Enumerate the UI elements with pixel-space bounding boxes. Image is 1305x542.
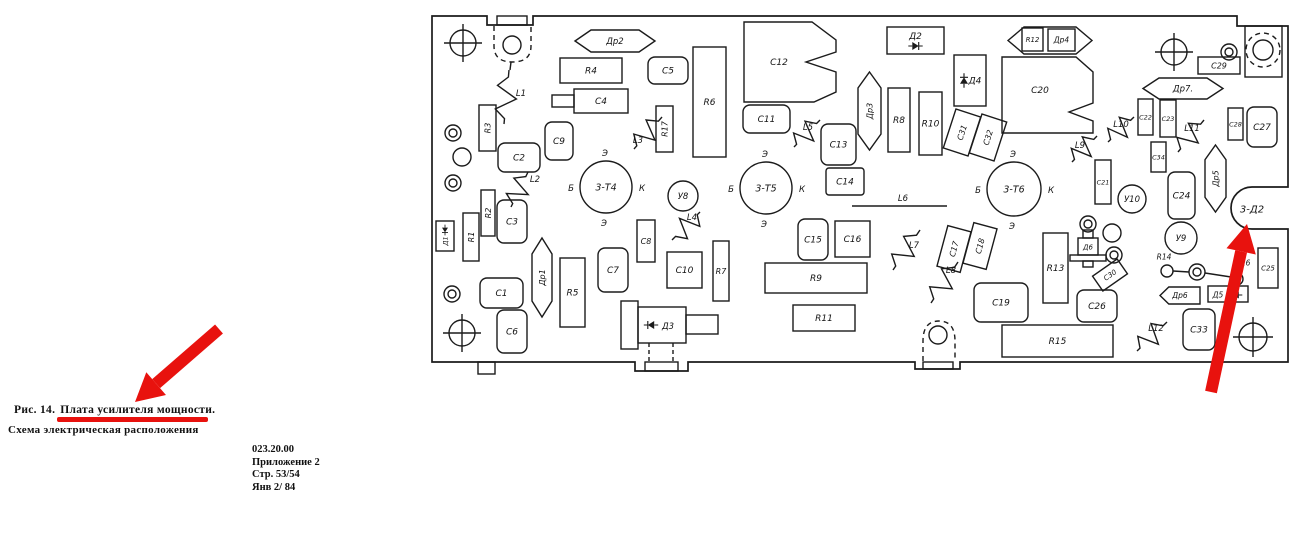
figure-caption: Рис. 14.Плата усилителя мощности. — [14, 404, 215, 416]
reference-date: Янв 2/ 84 — [252, 482, 320, 495]
svg-text:C34: C34 — [1152, 153, 1165, 161]
svg-text:Д2: Д2 — [908, 32, 922, 42]
svg-text:C19: C19 — [992, 299, 1010, 309]
svg-text:C10: C10 — [676, 266, 694, 276]
svg-text:L2: L2 — [530, 175, 540, 185]
svg-text:C9: C9 — [553, 137, 565, 147]
svg-text:L3: L3 — [633, 136, 643, 146]
svg-text:3-Т6: 3-Т6 — [1003, 184, 1024, 195]
svg-text:Э: Э — [600, 219, 607, 229]
svg-text:C3: C3 — [506, 218, 518, 228]
reference-appendix: Приложение 2 — [252, 457, 320, 470]
svg-text:К: К — [639, 184, 646, 194]
svg-text:C27: C27 — [1253, 123, 1271, 133]
reference-block: 023.20.00 Приложение 2 Стр. 53/54 Янв 2/… — [252, 444, 320, 494]
svg-text:Э: Э — [1008, 222, 1015, 232]
annotation-arrow-caption — [135, 329, 219, 402]
svg-text:C13: C13 — [830, 141, 848, 151]
svg-text:R15: R15 — [1049, 337, 1067, 347]
svg-text:Э: Э — [760, 220, 767, 230]
svg-text:К: К — [799, 185, 806, 195]
svg-text:Д5: Д5 — [1212, 291, 1224, 300]
pcb-board-svg: R4C4R6R3R17R1R2R5C8C10R7R8R10C31C32C14C1… — [0, 0, 1305, 542]
svg-text:Др1: Др1 — [538, 269, 547, 286]
svg-text:L6: L6 — [898, 194, 909, 204]
svg-text:L11: L11 — [1184, 124, 1200, 134]
svg-text:У9: У9 — [1176, 234, 1187, 244]
svg-text:L12: L12 — [1148, 324, 1164, 334]
svg-text:R8: R8 — [893, 116, 905, 126]
svg-text:C21: C21 — [1097, 178, 1110, 186]
reference-page: Стр. 53/54 — [252, 469, 320, 482]
svg-text:L5: L5 — [803, 123, 813, 133]
svg-text:C6: C6 — [506, 328, 518, 338]
svg-text:Э: Э — [601, 149, 608, 159]
svg-text:C2: C2 — [513, 154, 525, 164]
svg-text:C24: C24 — [1173, 192, 1191, 202]
pcb-figure: R4C4R6R3R17R1R2R5C8C10R7R8R10C31C32C14C1… — [0, 0, 1305, 542]
figure-caption-subtitle: Схема электрическая расположения — [8, 424, 199, 436]
svg-text:К: К — [1048, 186, 1055, 196]
svg-text:У10: У10 — [1124, 195, 1140, 205]
svg-text:R5: R5 — [567, 289, 579, 299]
svg-text:Д6: Д6 — [1082, 243, 1093, 251]
svg-text:C25: C25 — [1261, 264, 1275, 272]
svg-text:Др7.: Др7. — [1172, 84, 1193, 94]
svg-text:Др5: Др5 — [1211, 170, 1220, 187]
svg-text:Др3: Др3 — [865, 103, 874, 120]
svg-text:R2: R2 — [484, 208, 493, 219]
svg-text:Б: Б — [568, 184, 574, 194]
svg-text:Э: Э — [761, 150, 768, 160]
figure-caption-title: Плата усилителя мощности. — [60, 404, 215, 416]
svg-text:Б: Б — [728, 185, 734, 195]
svg-text:C16: C16 — [844, 235, 862, 245]
figure-caption-number: Рис. 14. — [14, 404, 55, 416]
svg-text:C1: C1 — [495, 289, 507, 299]
svg-text:Э: Э — [1009, 150, 1016, 160]
svg-text:R7: R7 — [716, 267, 728, 276]
svg-text:R1: R1 — [467, 232, 476, 243]
svg-text:R9: R9 — [810, 274, 822, 284]
svg-text:R10: R10 — [922, 120, 940, 130]
svg-text:3-Т5: 3-Т5 — [755, 183, 776, 194]
svg-text:R13: R13 — [1047, 264, 1065, 274]
svg-text:L9: L9 — [1075, 141, 1085, 151]
svg-text:R11: R11 — [815, 314, 833, 324]
svg-text:R6: R6 — [704, 98, 716, 108]
svg-text:Др4: Др4 — [1053, 36, 1070, 45]
svg-text:3-Т4: 3-Т4 — [595, 182, 616, 193]
svg-text:Др2: Др2 — [605, 37, 623, 47]
svg-text:L10: L10 — [1113, 120, 1129, 130]
svg-text:L1: L1 — [516, 89, 526, 99]
svg-text:Др6: Др6 — [1171, 291, 1188, 300]
svg-text:C20: C20 — [1031, 86, 1049, 96]
svg-text:Д1: Д1 — [441, 236, 449, 246]
svg-text:C29: C29 — [1211, 61, 1227, 70]
svg-text:C14: C14 — [836, 178, 854, 188]
svg-text:L7: L7 — [909, 241, 920, 251]
annotation-underline — [57, 417, 208, 422]
svg-text:C22: C22 — [1139, 113, 1152, 121]
svg-text:C15: C15 — [804, 236, 822, 246]
svg-text:C28: C28 — [1229, 120, 1242, 128]
svg-text:Б: Б — [975, 186, 981, 196]
svg-text:L4: L4 — [687, 213, 697, 223]
svg-text:C26: C26 — [1088, 302, 1106, 312]
component-3-Д2: 3-Д2 — [1240, 205, 1264, 216]
svg-text:R14: R14 — [1157, 253, 1172, 262]
svg-text:C4: C4 — [595, 97, 607, 107]
svg-text:Д4: Д4 — [968, 77, 982, 87]
svg-text:R12: R12 — [1026, 36, 1040, 44]
svg-text:L8: L8 — [946, 266, 957, 276]
reference-doc-number: 023.20.00 — [252, 444, 320, 457]
svg-text:C33: C33 — [1190, 326, 1208, 336]
svg-text:C8: C8 — [641, 237, 652, 246]
svg-text:R3: R3 — [483, 123, 492, 134]
svg-text:R4: R4 — [585, 67, 597, 77]
svg-text:R17: R17 — [660, 120, 669, 137]
svg-text:C7: C7 — [607, 266, 619, 276]
svg-text:3-Д2: 3-Д2 — [1240, 205, 1264, 216]
svg-text:Д3: Д3 — [661, 322, 674, 332]
svg-text:C12: C12 — [770, 58, 788, 68]
svg-text:C5: C5 — [662, 67, 674, 77]
svg-text:У8: У8 — [678, 192, 689, 202]
svg-text:C11: C11 — [758, 115, 776, 125]
svg-text:C23: C23 — [1162, 115, 1175, 123]
